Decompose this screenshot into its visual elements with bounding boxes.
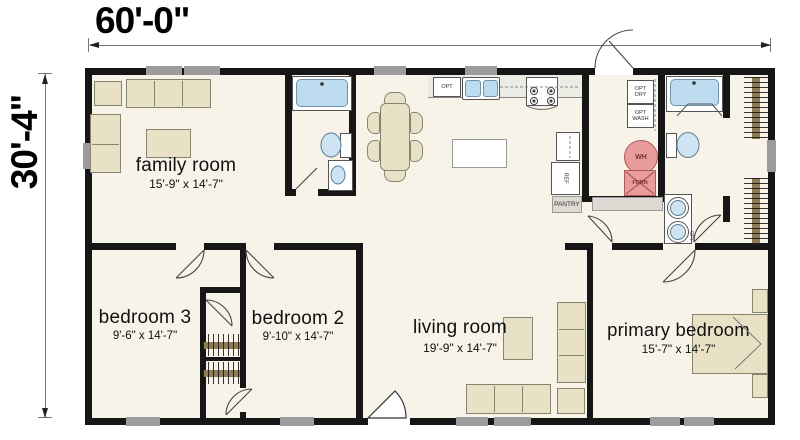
water-heater: WH [624,140,658,174]
interior-wall [723,75,730,118]
room-label-primary-bedroom: primary bedroom [606,319,751,341]
furnace-label: FURN [632,180,647,186]
closet-wall [240,412,246,418]
closet-wall [200,287,246,293]
dining-table [380,103,410,171]
refrigerator-label: REF [562,173,568,184]
interior-wall [92,243,176,250]
window [184,66,220,75]
interior-wall [285,75,292,196]
closet-divider [200,357,246,361]
dimension-arrow-up [42,74,48,84]
interior-wall [587,243,593,418]
interior-wall [723,196,730,222]
window [374,66,406,75]
interior-wall [565,243,588,250]
window [684,417,714,426]
exterior-wall-right [768,68,775,425]
top-dimension-line [90,45,770,46]
closet-hanging-clothes [203,362,240,384]
door-swing-rear-entry [595,30,633,68]
interior-wall [582,75,589,196]
room-label-bedroom-3: bedroom 3 [85,307,205,329]
optional-dishwasher: OPT [433,77,461,97]
dimension-arrow-down [42,408,48,418]
water-heater-label: WH [635,154,647,161]
floor-area [92,75,768,418]
dimension-arrow-left [89,42,99,48]
furnace: FURN [624,170,656,196]
optional-washer: OPT WASH [627,104,654,128]
sofa [126,79,211,108]
window [767,140,776,172]
bathroom-vanity [328,160,353,191]
toilet-tank [340,133,352,158]
refrigerator: REF [551,162,580,195]
end-table [94,81,122,106]
left-dimension-line [45,74,46,418]
dining-chair [410,112,423,134]
range [526,77,558,106]
sink-basin [483,80,498,97]
interior-wall [695,243,768,250]
kitchen-island [452,139,507,168]
nightstand [752,374,768,398]
sink-basin [465,80,481,97]
door-opening [368,418,410,425]
opt-dishwasher-label: OPT [441,84,452,90]
pantry-label: PANTRY [554,201,580,208]
window [494,417,531,426]
sofa [466,384,551,414]
toilet-tank [666,133,677,158]
room-size-bedroom-2: 9'-10" x 14'-7" [238,331,358,343]
room-size-bedroom-3: 9'-6" x 14'-7" [85,330,205,342]
interior-wall [612,243,663,250]
floor-plan: 60'-0" 30'-4" [0,0,800,440]
window [465,66,497,75]
height-dimension-label: 30'-4" [4,67,42,217]
window [456,417,488,426]
window [146,66,182,75]
interior-wall [658,75,665,200]
opt-vanity-label: OPT [686,224,694,238]
coffee-table [146,129,191,158]
pantry: PANTRY [552,196,582,213]
window [650,417,680,426]
sofa [557,302,586,383]
width-dimension-label: 60'-0" [95,0,189,42]
hall-shelf [592,197,663,211]
room-label-living-room: living room [396,317,524,339]
room-size-primary-bedroom: 15'-7" x 14'-7" [606,342,751,356]
room-size-family-room: 15'-9" x 14'-7" [106,177,266,191]
closet-hanging-clothes [744,178,768,244]
closet-hanging-clothes [203,334,240,356]
room-label-family-room: family room [106,155,266,177]
opt-washer-label: OPT WASH [632,110,648,123]
window [126,417,160,426]
window [280,417,314,426]
interior-wall [274,243,363,250]
closet-hanging-clothes [744,77,768,139]
optional-dryer: OPT DRY [627,80,654,104]
bathtub-basin [670,79,719,106]
opt-dryer-label: OPT DRY [635,86,647,99]
dimension-arrow-right [761,42,771,48]
interior-wall [285,189,296,196]
nightstand [752,289,768,313]
bathtub-basin [296,79,348,107]
room-size-living-room: 19'-9" x 14'-7" [396,341,524,355]
door-opening [595,68,633,75]
counter [556,132,580,161]
interior-wall [204,243,246,250]
dining-chair [367,112,380,134]
dining-chair [367,140,380,162]
end-table [557,388,585,414]
dining-chair [410,140,423,162]
room-label-bedroom-2: bedroom 2 [238,308,358,330]
